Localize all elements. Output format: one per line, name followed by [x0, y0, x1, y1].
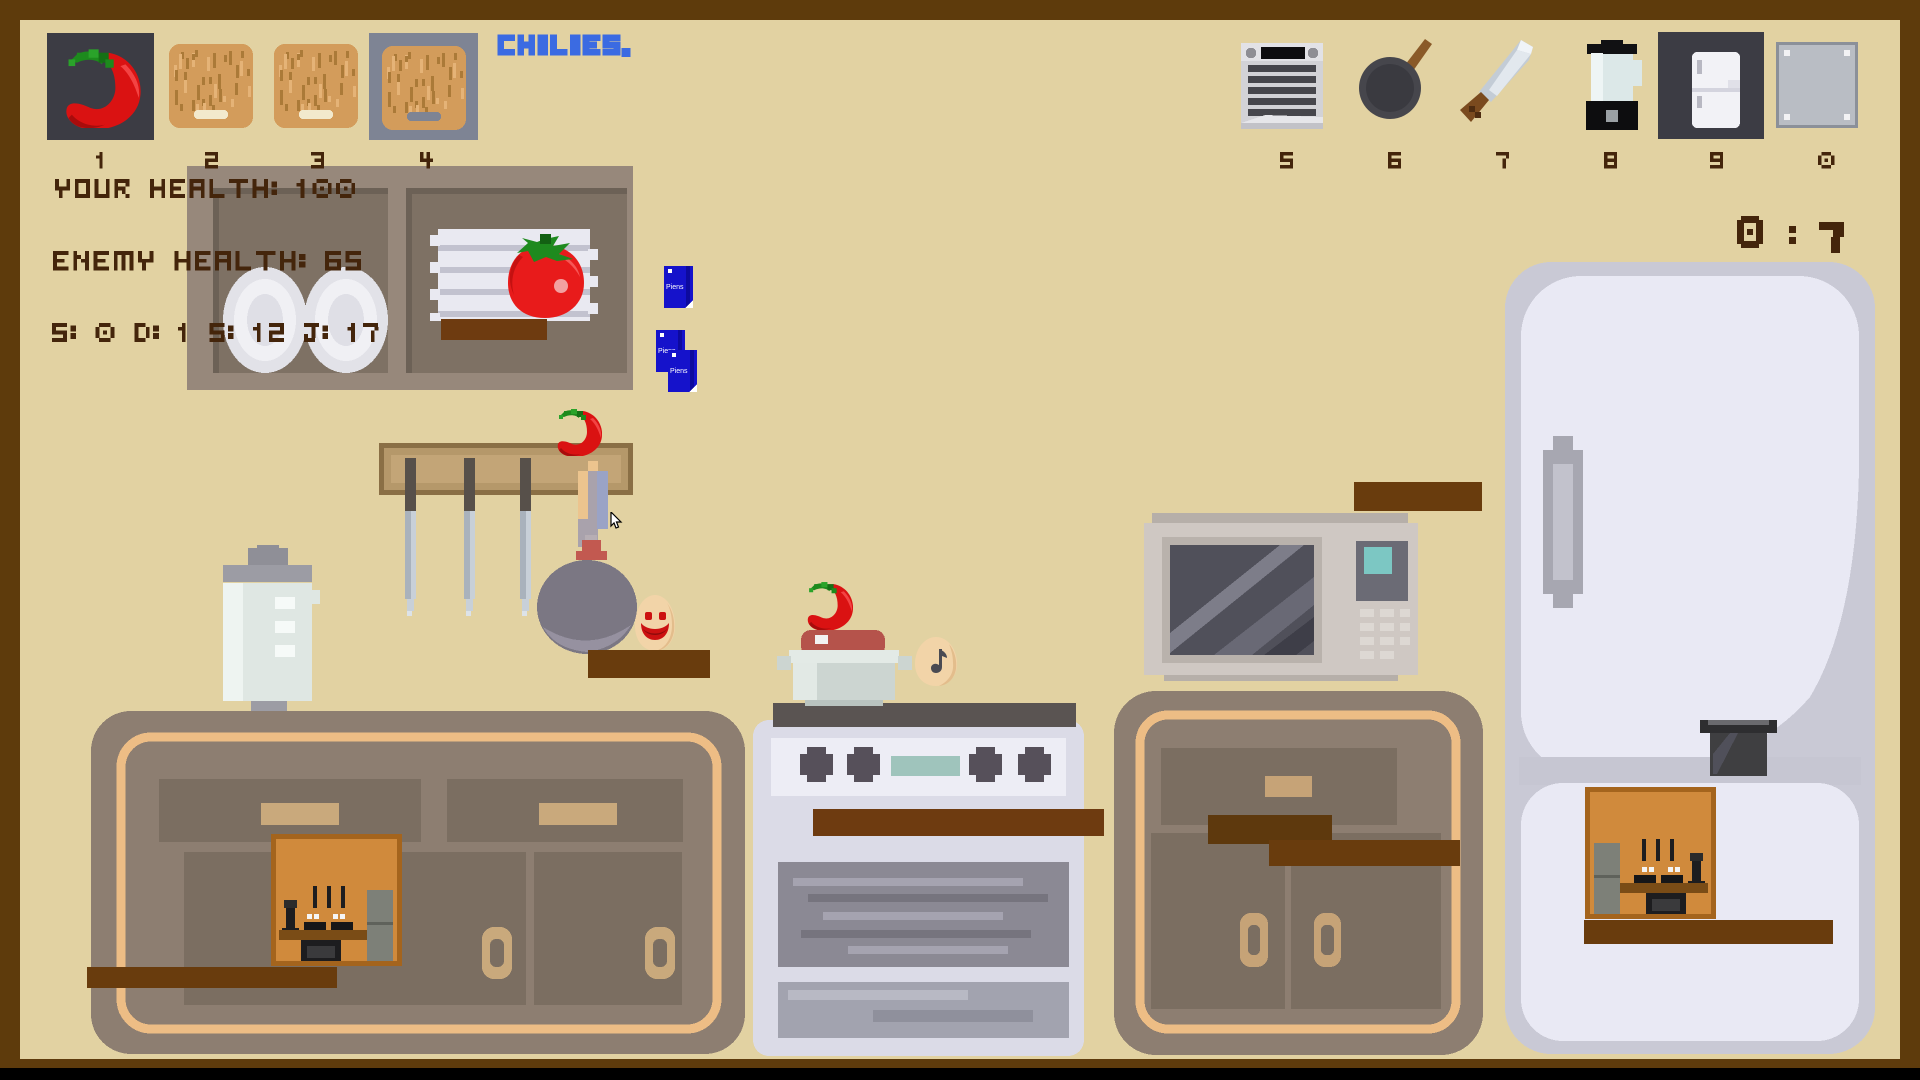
svg-text:Piens: Piens — [666, 284, 684, 291]
svg-text:Piens: Piens — [670, 368, 688, 375]
